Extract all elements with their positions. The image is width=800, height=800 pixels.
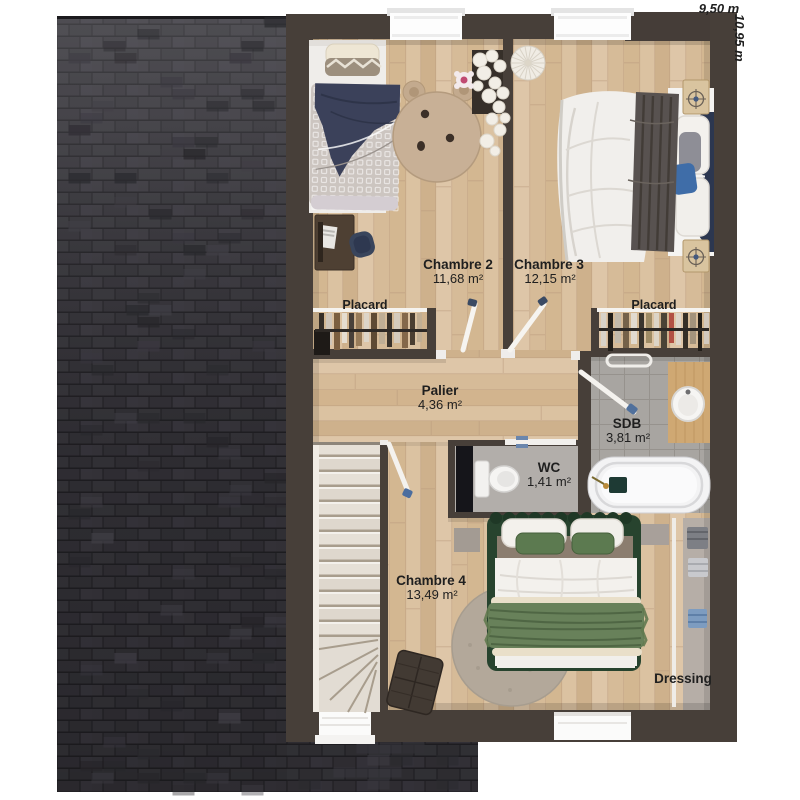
- svg-text:Chambre 3: Chambre 3: [514, 257, 584, 272]
- svg-text:1,41 m²: 1,41 m²: [527, 474, 572, 489]
- svg-text:Dressing: Dressing: [654, 671, 712, 686]
- svg-text:Palier: Palier: [422, 383, 460, 398]
- svg-text:Placard: Placard: [342, 298, 387, 312]
- svg-text:WC: WC: [538, 460, 561, 475]
- svg-text:4,36 m²: 4,36 m²: [418, 397, 463, 412]
- svg-text:Chambre 4: Chambre 4: [396, 573, 466, 588]
- svg-text:SDB: SDB: [613, 416, 642, 431]
- svg-text:10,95 m: 10,95 m: [732, 14, 747, 62]
- svg-text:Chambre 2: Chambre 2: [423, 257, 493, 272]
- svg-text:13,49 m²: 13,49 m²: [406, 587, 458, 602]
- svg-text:Placard: Placard: [631, 298, 676, 312]
- svg-text:3,81 m²: 3,81 m²: [606, 430, 651, 445]
- svg-text:12,15 m²: 12,15 m²: [524, 271, 576, 286]
- svg-text:11,68 m²: 11,68 m²: [433, 271, 484, 286]
